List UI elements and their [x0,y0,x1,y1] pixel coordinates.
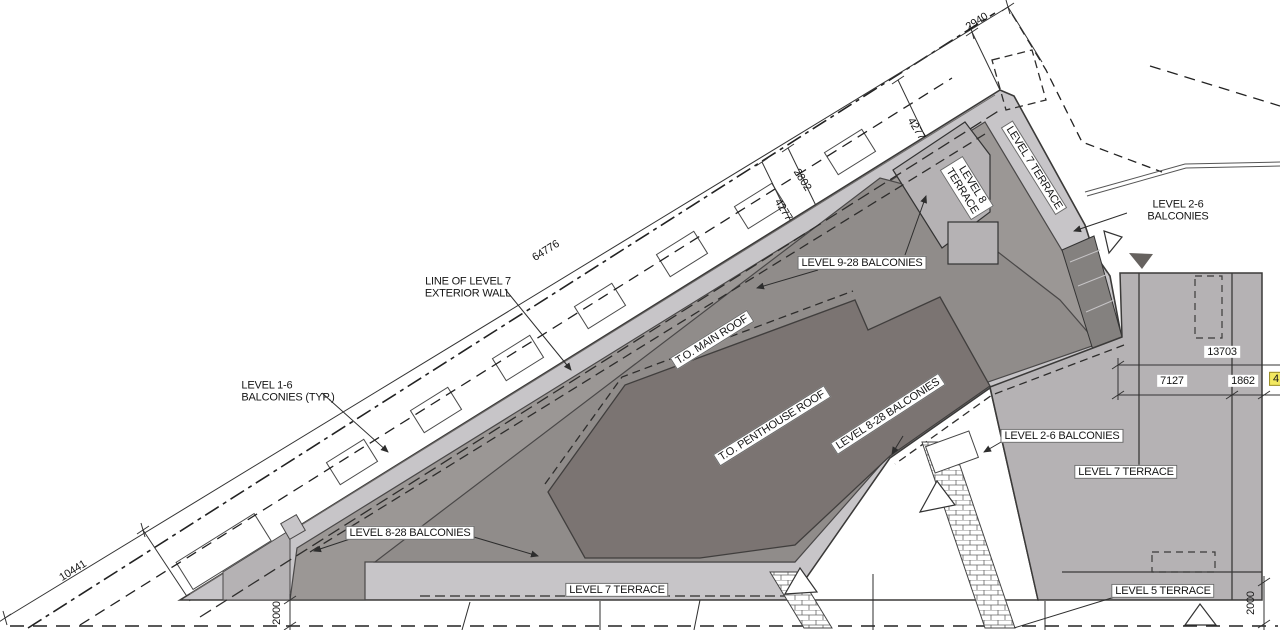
plan-linework [0,0,1280,630]
roof-plan-canvas: 2940427728024277647761044113703712718624… [0,0,1280,630]
level8-terrace-step [948,222,998,264]
